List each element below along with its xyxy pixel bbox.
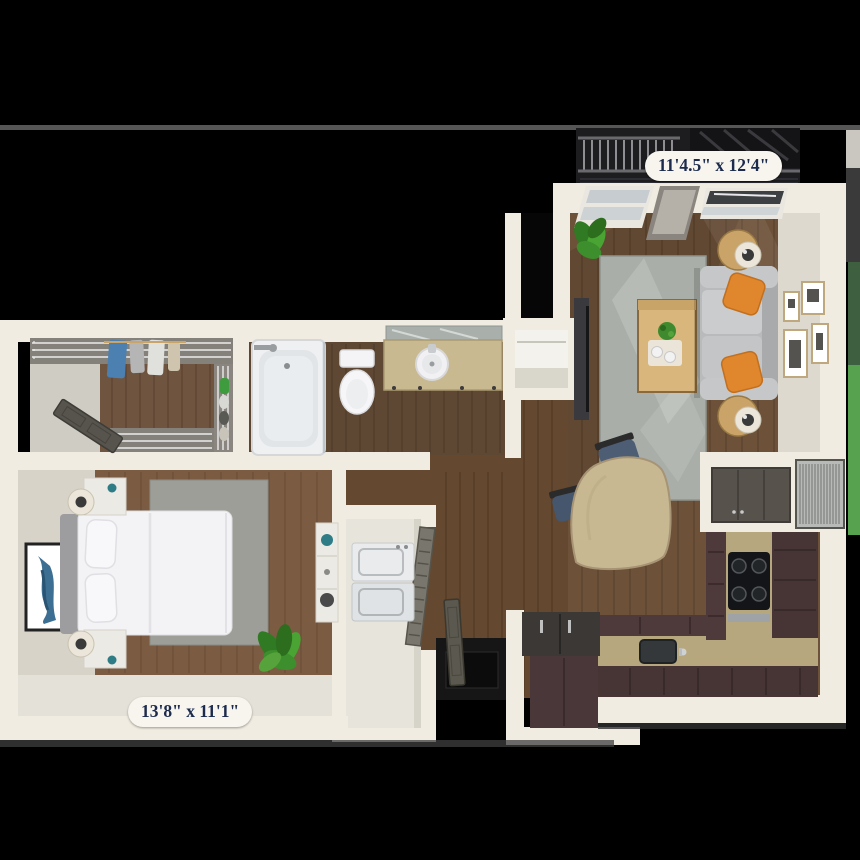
shower-head	[254, 345, 270, 350]
exterior-right-edge	[846, 130, 860, 535]
hvac-unit	[796, 460, 844, 528]
shadow-bottom-left	[0, 740, 614, 747]
cabinet-fronts-south	[598, 666, 818, 697]
cup	[652, 347, 663, 358]
exterior-notch	[521, 213, 553, 322]
headboard	[60, 514, 80, 634]
counter-granite-bottom	[598, 636, 818, 666]
vanity-with-sink	[384, 326, 502, 390]
bed-pillow	[85, 519, 117, 569]
floor-plan-image: 11'4.5" x 12'4" 13'8" x 11'1"	[0, 0, 860, 860]
vanity-faucet	[428, 344, 436, 353]
dining-table	[571, 457, 670, 569]
oven-handle	[728, 614, 770, 622]
wall-island-left	[506, 610, 524, 745]
shadow-bottom-right	[598, 723, 846, 729]
cabinet-side-east	[772, 520, 818, 638]
cup	[665, 352, 676, 363]
sofa	[694, 266, 778, 400]
upper-cabinets	[712, 468, 790, 522]
coffee-table	[638, 300, 696, 392]
kitchen-sink	[640, 640, 676, 663]
wall-laundry-top	[332, 505, 436, 519]
wall-living-left	[553, 183, 570, 330]
floor-plan-svg	[0, 0, 860, 860]
bed-pillow	[85, 573, 117, 623]
wall-kitchen-bottom	[598, 695, 846, 723]
tv-screen	[586, 306, 589, 412]
island-top	[522, 612, 600, 656]
tub-drain	[284, 363, 290, 369]
table-plant	[658, 322, 676, 340]
cabinet-fronts-west	[706, 520, 726, 640]
wall-closet-bath-divider	[233, 342, 249, 454]
bathtub-shower	[252, 340, 325, 455]
gallery-wall-frames	[784, 282, 828, 377]
orange-pillow	[720, 350, 764, 394]
wall-laundry-bottom	[332, 728, 436, 742]
wall-left	[0, 320, 18, 740]
coat-closet	[503, 318, 580, 400]
dresser	[316, 523, 338, 622]
toilet	[340, 350, 374, 414]
kitchen-island	[522, 612, 600, 728]
bed	[60, 511, 232, 635]
tv-console	[574, 298, 589, 420]
wall-laundry-right-stub	[421, 505, 436, 527]
bedroom-dimension-label: 13'8" x 11'1"	[128, 697, 252, 727]
living-room-dimension-label: 11'4.5" x 12'4"	[645, 151, 782, 181]
wall-bath-bedroom-divider	[18, 452, 430, 470]
